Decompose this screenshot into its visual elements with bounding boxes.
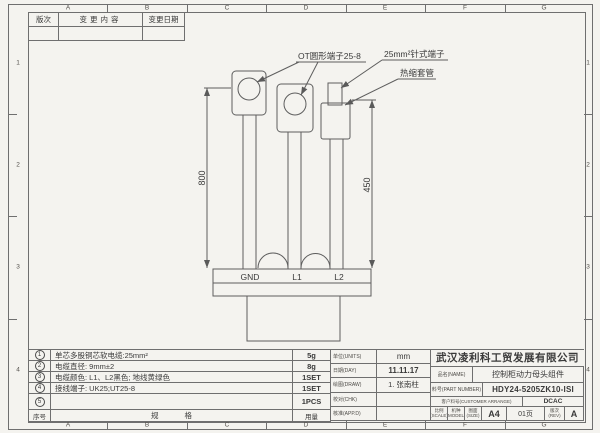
bom-table: 1 单芯多股铜芯软电缆:25mm² 5g 2 电缆直径: 9mm±2 8g 3 … bbox=[29, 349, 331, 422]
customer-part-label: 客户料号(CUSTOMER ARRANGE) bbox=[431, 397, 523, 407]
model-label: 机种(MODEL) bbox=[448, 407, 465, 421]
wire-label-l1: L1 bbox=[292, 272, 302, 282]
ring-terminal-middle bbox=[277, 84, 313, 269]
revision-label: 版次(REV) bbox=[545, 407, 565, 421]
approver-value bbox=[377, 407, 431, 421]
circled-number: 3 bbox=[35, 372, 45, 382]
callout-heat-shrink: 热缩套管 bbox=[400, 68, 434, 78]
size-value: A4 bbox=[482, 407, 507, 421]
date-label: 日期(DAY) bbox=[331, 364, 377, 378]
title-block-meta: 单位(UNITS) mm 日期(DAY) 11.11.17 绘图(DRAW) 1… bbox=[331, 350, 431, 421]
units-value: mm bbox=[377, 350, 431, 364]
bom-row-qty: 8g bbox=[293, 361, 331, 372]
bom-row-number: 5 bbox=[29, 394, 51, 410]
bom-footer-spec: 规格 bbox=[51, 410, 293, 422]
bom-row-desc: 电缆颜色: L1、L2黑色; 地线黄绿色 bbox=[51, 372, 293, 383]
circled-number: 1 bbox=[35, 350, 45, 360]
customer-part-value: DCAC bbox=[523, 397, 584, 407]
bom-row-qty: 1SET bbox=[293, 383, 331, 394]
bom-row-number: 2 bbox=[29, 361, 51, 372]
product-name-label: 品名(NAME) bbox=[431, 367, 473, 383]
drawing-sheet: A B C D E F G A B C D E F G 1 2 3 4 1 2 … bbox=[0, 0, 600, 433]
part-number-value: HDY24-5205ZK10-ISI bbox=[483, 383, 584, 398]
bom-row-qty: 1PCS bbox=[293, 394, 331, 410]
bom-row-number: 3 bbox=[29, 372, 51, 383]
wire-label-gnd: GND bbox=[241, 272, 260, 282]
drawer-value: 1. 张南柱 bbox=[377, 378, 431, 392]
circled-number: 4 bbox=[35, 383, 45, 393]
dimension-label-450: 450 bbox=[362, 177, 372, 192]
wire-label-l2: L2 bbox=[334, 272, 344, 282]
bom-footer-no: 序号 bbox=[29, 410, 51, 422]
ring-terminal-left bbox=[232, 71, 266, 269]
scale-label: 比例(SCALE) bbox=[431, 407, 448, 421]
bom-row-qty: 1SET bbox=[293, 372, 331, 383]
circled-number: 2 bbox=[35, 361, 45, 371]
bom-row-qty: 5g bbox=[293, 350, 331, 361]
page-value: 01页 bbox=[507, 407, 545, 421]
date-value: 11.11.17 bbox=[377, 364, 431, 378]
units-label: 单位(UNITS) bbox=[331, 350, 377, 364]
approver-label: 核准(APP.D) bbox=[331, 407, 377, 421]
checker-label: 校对(CHK) bbox=[331, 393, 377, 407]
title-block-main: 武汉凌利科工贸发展有限公司 品名(NAME) 控制柜动力母头组件 料号(PART… bbox=[431, 350, 584, 421]
company-name: 武汉凌利科工贸发展有限公司 bbox=[431, 350, 584, 367]
drawer-label: 绘图(DRAW) bbox=[331, 378, 377, 392]
product-name-value: 控制柜动力母头组件 bbox=[473, 367, 584, 383]
dimension-label-800: 800 bbox=[197, 170, 207, 185]
part-number-label: 料号(PART NUMBER) bbox=[431, 383, 483, 398]
callout-pin-terminal: 25mm²针式端子 bbox=[384, 49, 445, 59]
bom-footer-qty: 用量 bbox=[293, 410, 331, 422]
circled-number: 5 bbox=[35, 397, 45, 407]
bom-row-desc: 单芯多股铜芯软电缆:25mm² bbox=[51, 350, 293, 361]
callout-ot-terminal: OT圆形端子25-8 bbox=[298, 51, 361, 61]
pin-terminal-right bbox=[321, 83, 350, 269]
cable-slack-arcs bbox=[258, 253, 330, 268]
bom-row-number: 4 bbox=[29, 383, 51, 394]
bom-row-desc bbox=[51, 394, 293, 410]
title-block: 单位(UNITS) mm 日期(DAY) 11.11.17 绘图(DRAW) 1… bbox=[331, 349, 584, 421]
bom-row-desc: 电缆直径: 9mm±2 bbox=[51, 361, 293, 372]
bom-row-number: 1 bbox=[29, 350, 51, 361]
revision-value: A bbox=[565, 407, 584, 421]
size-label: 图面(SIZE) bbox=[465, 407, 482, 421]
bom-row-desc: 接线端子: UK25;UT25-8 bbox=[51, 383, 293, 394]
checker-value bbox=[377, 393, 431, 407]
